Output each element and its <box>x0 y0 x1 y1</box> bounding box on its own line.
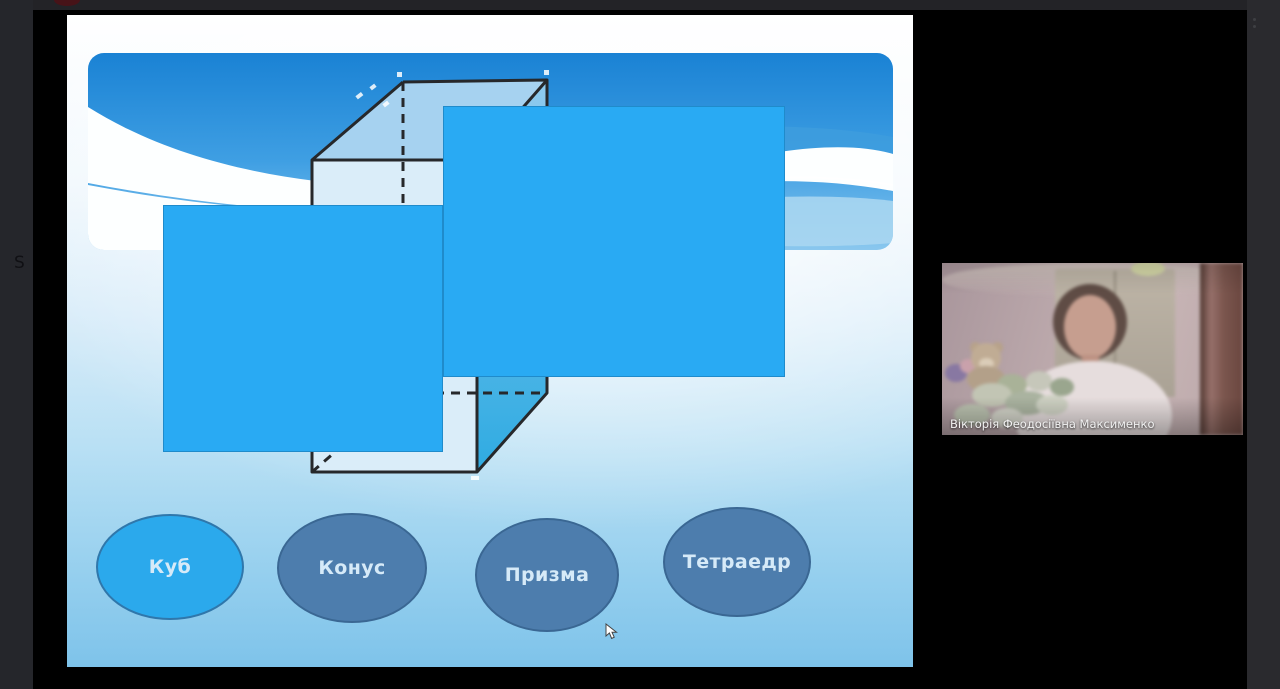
video-call-window: S <box>0 0 1280 689</box>
presentation-slide: Куб Конус Призма Тетраедр <box>67 15 913 667</box>
mouse-cursor <box>605 623 619 641</box>
overflow-menu-icon[interactable] <box>1253 18 1257 32</box>
answer-oval-tetraedr[interactable]: Тетраедр <box>663 507 811 617</box>
right-rail <box>1247 0 1280 689</box>
answer-cover-left <box>163 205 443 452</box>
answer-oval-pryzma[interactable]: Призма <box>475 518 619 632</box>
answer-cover-right <box>443 106 785 377</box>
rail-letter: S <box>14 253 25 273</box>
answer-oval-konus[interactable]: Конус <box>277 513 427 623</box>
participant-video[interactable]: Вікторія Феодосіївна Максименко <box>942 263 1243 435</box>
participant-name-label: Вікторія Феодосіївна Максименко <box>950 417 1155 431</box>
answer-oval-kub[interactable]: Куб <box>96 514 244 620</box>
shared-screen-stage: Куб Конус Призма Тетраедр <box>33 10 941 689</box>
left-rail: S <box>0 0 33 689</box>
video-panel: Вікторія Феодосіївна Максименко <box>941 10 1247 689</box>
top-strip <box>33 0 1247 10</box>
answer-label: Конус <box>318 557 385 579</box>
answer-label: Тетраедр <box>683 551 791 573</box>
answer-label: Призма <box>505 564 590 586</box>
answer-label: Куб <box>149 556 191 578</box>
video-shade <box>942 263 1243 435</box>
